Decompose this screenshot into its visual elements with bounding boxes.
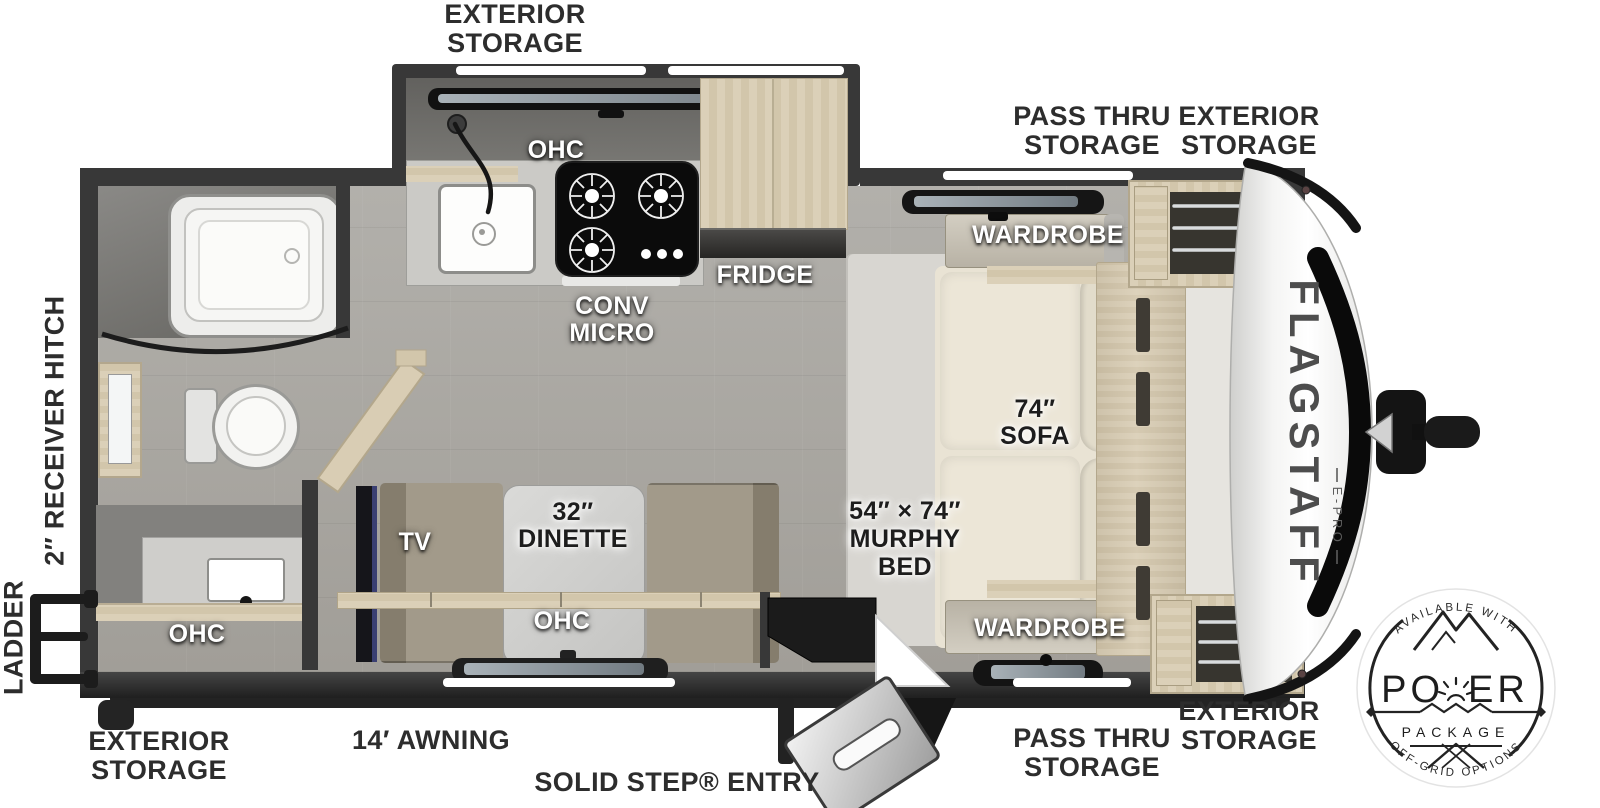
dinette-table (503, 485, 645, 665)
badge-top-text: AVAILABLE WITH (1392, 602, 1520, 637)
tv-screen (356, 486, 372, 662)
bath-ohc-shelf (96, 603, 310, 621)
badge-mountains-icon (1414, 612, 1498, 650)
dinette-ohc-seam-3 (700, 592, 702, 607)
badge-divider-line (1372, 704, 1540, 712)
kitchen-overhead-cabinet (700, 78, 848, 230)
dinette-ohc-seam-2 (560, 592, 562, 607)
dinette-ohc-shelf (337, 592, 781, 609)
entry-window-knob (1040, 654, 1052, 666)
kitchen-window-handle (598, 110, 624, 118)
wardrobe-bottom-step (987, 580, 1109, 598)
svg-text:OFF-GRID OPTIONS: OFF-GRID OPTIONS (1387, 739, 1525, 779)
label-ladder: LADDER (0, 568, 29, 708)
label-top-front-exterior-storage: EXTERIOR STORAGE (1169, 102, 1329, 160)
label-top-exterior-storage: EXTERIOR STORAGE (395, 0, 635, 58)
bed-panel-slot-2 (1136, 372, 1150, 426)
badge-bottom-text: OFF-GRID OPTIONS (1387, 739, 1525, 779)
floorplan-canvas: FLAGSTAFF E-PRO AVAILABLE WITH PO (0, 0, 1600, 808)
kitchen-sink-drain-dot (479, 229, 485, 235)
wardrobe-top-cabinet (945, 214, 1113, 268)
bathtub-drain (284, 248, 300, 264)
toilet-seat (226, 396, 286, 456)
svg-text:AVAILABLE WITH: AVAILABLE WITH (1392, 602, 1520, 637)
passthru-bottom-interior (1196, 606, 1292, 682)
label-rear-exterior-storage: EXTERIOR STORAGE (79, 727, 239, 785)
power-package-badge: AVAILABLE WITH PO ER PACKAGE (1357, 589, 1555, 787)
nose-window-trim (1318, 258, 1360, 606)
wardrobe-top-step (987, 266, 1109, 284)
brand-sub: E-PRO (1330, 487, 1345, 546)
tv-accent-strip (372, 486, 377, 662)
sofa-cushion-top (940, 272, 1080, 450)
front-wall-window-strip (1013, 678, 1131, 687)
badge-subtitle: PACKAGE (1402, 724, 1511, 740)
hitch (1366, 390, 1480, 474)
label-entry: SOLID STEP® ENTRY (527, 768, 827, 797)
dinette-ohc-seam-1 (430, 592, 432, 607)
dinette-window-glass (464, 663, 644, 675)
kitchen-cabinet-divider (772, 78, 774, 228)
badge-title-left: PO (1381, 669, 1444, 711)
bed-mattress (1186, 268, 1264, 648)
kitchen-faucet (447, 114, 467, 134)
murphy-window-glass (914, 196, 1078, 207)
stove-lower-trim (562, 276, 680, 286)
slide-window-strip-left (456, 66, 646, 75)
bathtub-basin (198, 220, 310, 310)
badge-bottom-icon (1428, 744, 1484, 768)
label-bottom-pass-thru-storage: PASS THRU STORAGE (1007, 724, 1177, 782)
label-awning: 14′ AWNING (331, 726, 531, 755)
bed-panel-slot-3 (1136, 492, 1150, 546)
top-wall-window-strip (943, 171, 1133, 180)
kitchen-shelf (406, 166, 518, 182)
entry-window-glass (991, 665, 1085, 679)
dinette-bench-left (380, 483, 503, 663)
badge-title-right: ER (1468, 669, 1529, 711)
badge-sun-icon (1439, 678, 1473, 700)
bed-panel-slot-1 (1136, 298, 1150, 352)
chassis-bar (110, 698, 1290, 708)
slide-window-strip-right (668, 66, 844, 75)
fridge-body (700, 228, 846, 258)
bed-panel-slot-4 (1136, 566, 1150, 620)
label-receiver-hitch: 2″ RECEIVER HITCH (40, 281, 69, 581)
passthru-bottom-drawer (1156, 600, 1192, 686)
passthru-top-drawer (1134, 186, 1168, 280)
murphy-window-latch (988, 212, 1008, 221)
bath-mirror (108, 374, 132, 464)
wall-top-left (80, 168, 406, 186)
entry-wall-stub (760, 592, 770, 668)
wardrobe-bottom-cabinet (945, 600, 1113, 654)
label-top-pass-thru-storage: PASS THRU STORAGE (1007, 102, 1177, 160)
awning-wall-strip (443, 678, 675, 687)
bath-partition-wall (336, 186, 350, 338)
tv-wall (302, 480, 318, 670)
passthru-top-interior (1170, 192, 1254, 274)
